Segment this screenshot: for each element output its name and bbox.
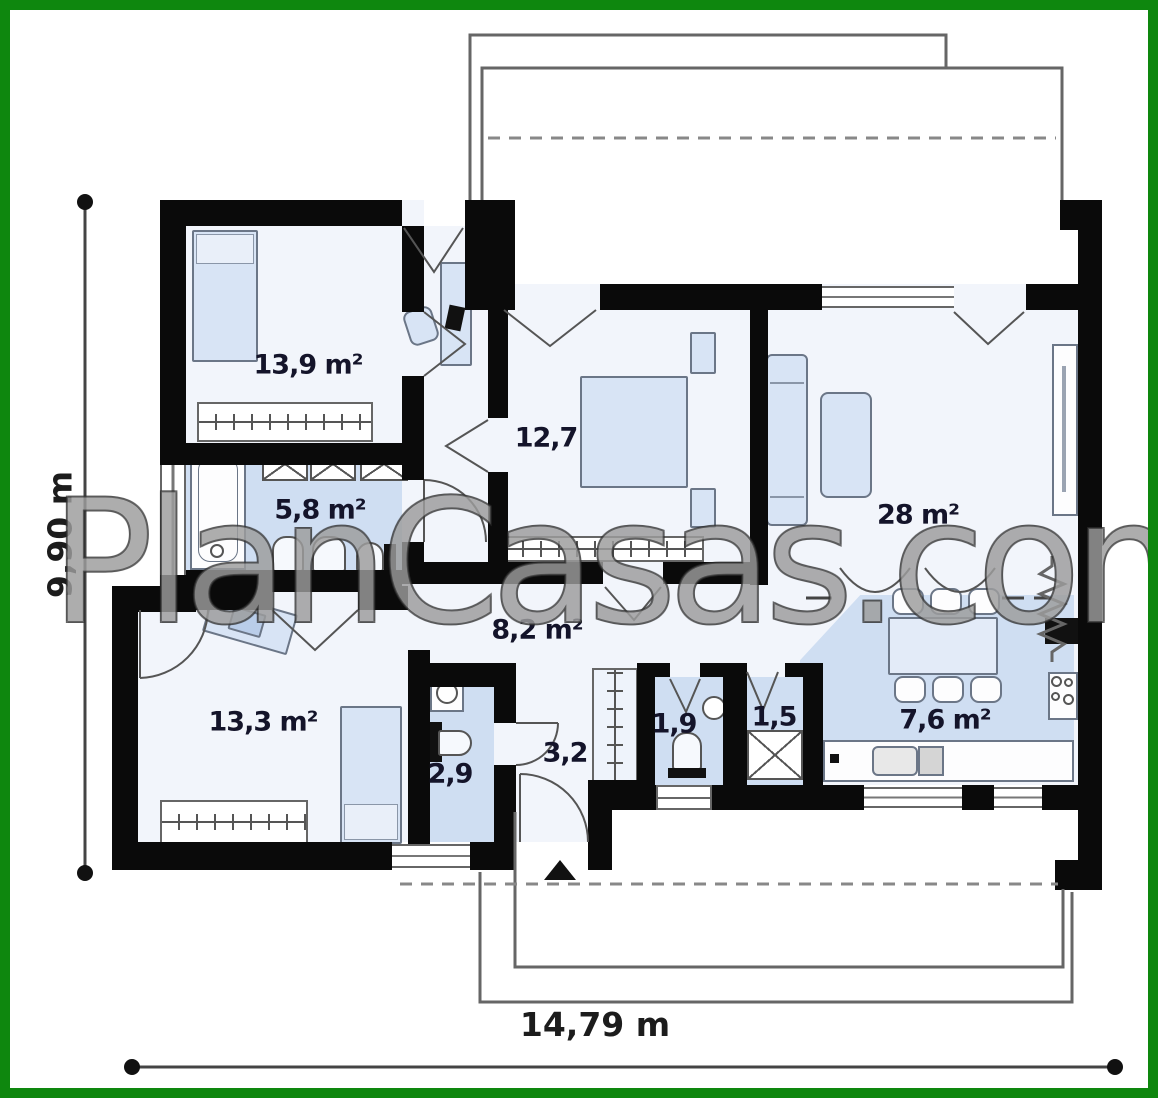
room-label-hallway: 8,2 m² — [491, 615, 582, 646]
stove-burner — [1051, 692, 1060, 701]
window — [994, 787, 1042, 808]
washing-machine — [747, 730, 803, 780]
wall-segment — [1055, 860, 1102, 890]
kitchen-sink — [872, 746, 918, 776]
wall-segment — [1078, 228, 1102, 288]
window — [822, 286, 954, 308]
wall-segment — [186, 443, 402, 465]
wall-segment — [402, 376, 424, 480]
wall-segment — [588, 780, 638, 802]
wall-segment — [750, 302, 768, 585]
toilet-base — [668, 768, 706, 778]
stove-burner — [1063, 694, 1074, 705]
wall-segment — [494, 765, 516, 842]
wall-segment — [488, 472, 508, 575]
kitchen-counter — [823, 740, 1074, 782]
dining-chair — [894, 676, 926, 703]
room-label-utility: 1,5 — [752, 702, 797, 733]
nightstand — [690, 332, 716, 374]
wall-segment — [1078, 288, 1102, 890]
closet-rail — [592, 668, 638, 782]
wall-segment — [663, 562, 768, 584]
back-step — [656, 785, 712, 810]
room-label-bedroom-1: 13,9 m² — [254, 350, 363, 381]
wardrobe-rail — [197, 402, 373, 442]
toilet-tank — [384, 544, 396, 572]
tv-screen — [1062, 366, 1066, 492]
wall-segment — [465, 200, 515, 310]
terrace-outline — [470, 35, 946, 200]
sink — [272, 536, 304, 572]
sofa — [766, 354, 808, 526]
porch-outline — [480, 872, 1072, 1002]
bathtub-drain — [210, 544, 224, 558]
dimension-height-label: 9,90 m — [41, 465, 80, 605]
wall-segment — [112, 842, 392, 870]
wall-segment — [700, 663, 725, 677]
nightstand — [690, 488, 716, 528]
wall-segment — [803, 663, 823, 785]
sofa-cushion — [770, 496, 804, 498]
wall-segment — [408, 663, 500, 687]
wall-segment — [358, 586, 408, 610]
wall-segment — [402, 226, 424, 312]
double-bed — [580, 376, 688, 488]
wall-segment — [488, 308, 508, 418]
dining-table — [888, 617, 998, 675]
dim-dot — [77, 865, 93, 881]
sofa-cushion — [770, 382, 804, 384]
wall-segment — [962, 785, 994, 810]
wall-segment — [160, 200, 402, 226]
floor-plan: 13,9 m² 12,7 5,8 m² 28 m² 8,2 m² 13,3 m²… — [0, 0, 1158, 1098]
bidet — [312, 536, 346, 572]
coffee-table — [820, 392, 872, 498]
sink-drainer — [918, 746, 944, 776]
dining-chair — [968, 588, 1000, 615]
toilet — [438, 730, 472, 756]
wardrobe-rail — [504, 536, 704, 562]
wall-segment — [470, 842, 516, 870]
bed-pillow — [196, 234, 254, 264]
toilet — [356, 542, 384, 572]
wall-segment — [712, 785, 864, 810]
wall-segment — [402, 562, 603, 584]
dim-dot — [1107, 1059, 1123, 1075]
dining-chair — [970, 676, 1002, 703]
counter-dot — [830, 754, 839, 763]
room-label-wc-small: 2,9 — [428, 759, 473, 790]
dimension-width-label: 14,79 m — [465, 1005, 725, 1044]
wall-segment — [196, 586, 272, 610]
room-label-entry: 3,2 — [543, 738, 588, 769]
window — [160, 465, 186, 575]
bed-pillow — [344, 804, 398, 840]
wall-segment — [112, 586, 138, 870]
room-label-kitchen: 7,6 m² — [899, 705, 990, 736]
stove-burner — [1064, 678, 1073, 687]
window — [864, 787, 962, 808]
dim-dot — [77, 194, 93, 210]
entrance-arrow-icon — [544, 860, 576, 880]
window — [392, 844, 470, 868]
wall-segment — [723, 663, 747, 785]
room-label-bedroom-2: 12,7 — [515, 423, 578, 454]
wall-segment — [600, 284, 822, 310]
dim-dot — [124, 1059, 140, 1075]
dining-chair — [932, 676, 964, 703]
wall-segment — [494, 663, 516, 723]
dining-chair — [930, 588, 962, 615]
room-label-living: 28 m² — [877, 500, 959, 531]
wardrobe-rail — [160, 800, 308, 844]
stove-burner — [1051, 676, 1062, 687]
dining-chair — [892, 588, 924, 615]
room-label-bathroom: 5,8 m² — [274, 495, 365, 526]
wall-segment — [1060, 200, 1102, 230]
wall-segment — [655, 663, 670, 677]
terrace-outline — [482, 68, 1062, 200]
room-label-bedroom-3: 13,3 m² — [209, 707, 318, 738]
room-label-wc: 1,9 — [652, 709, 697, 740]
